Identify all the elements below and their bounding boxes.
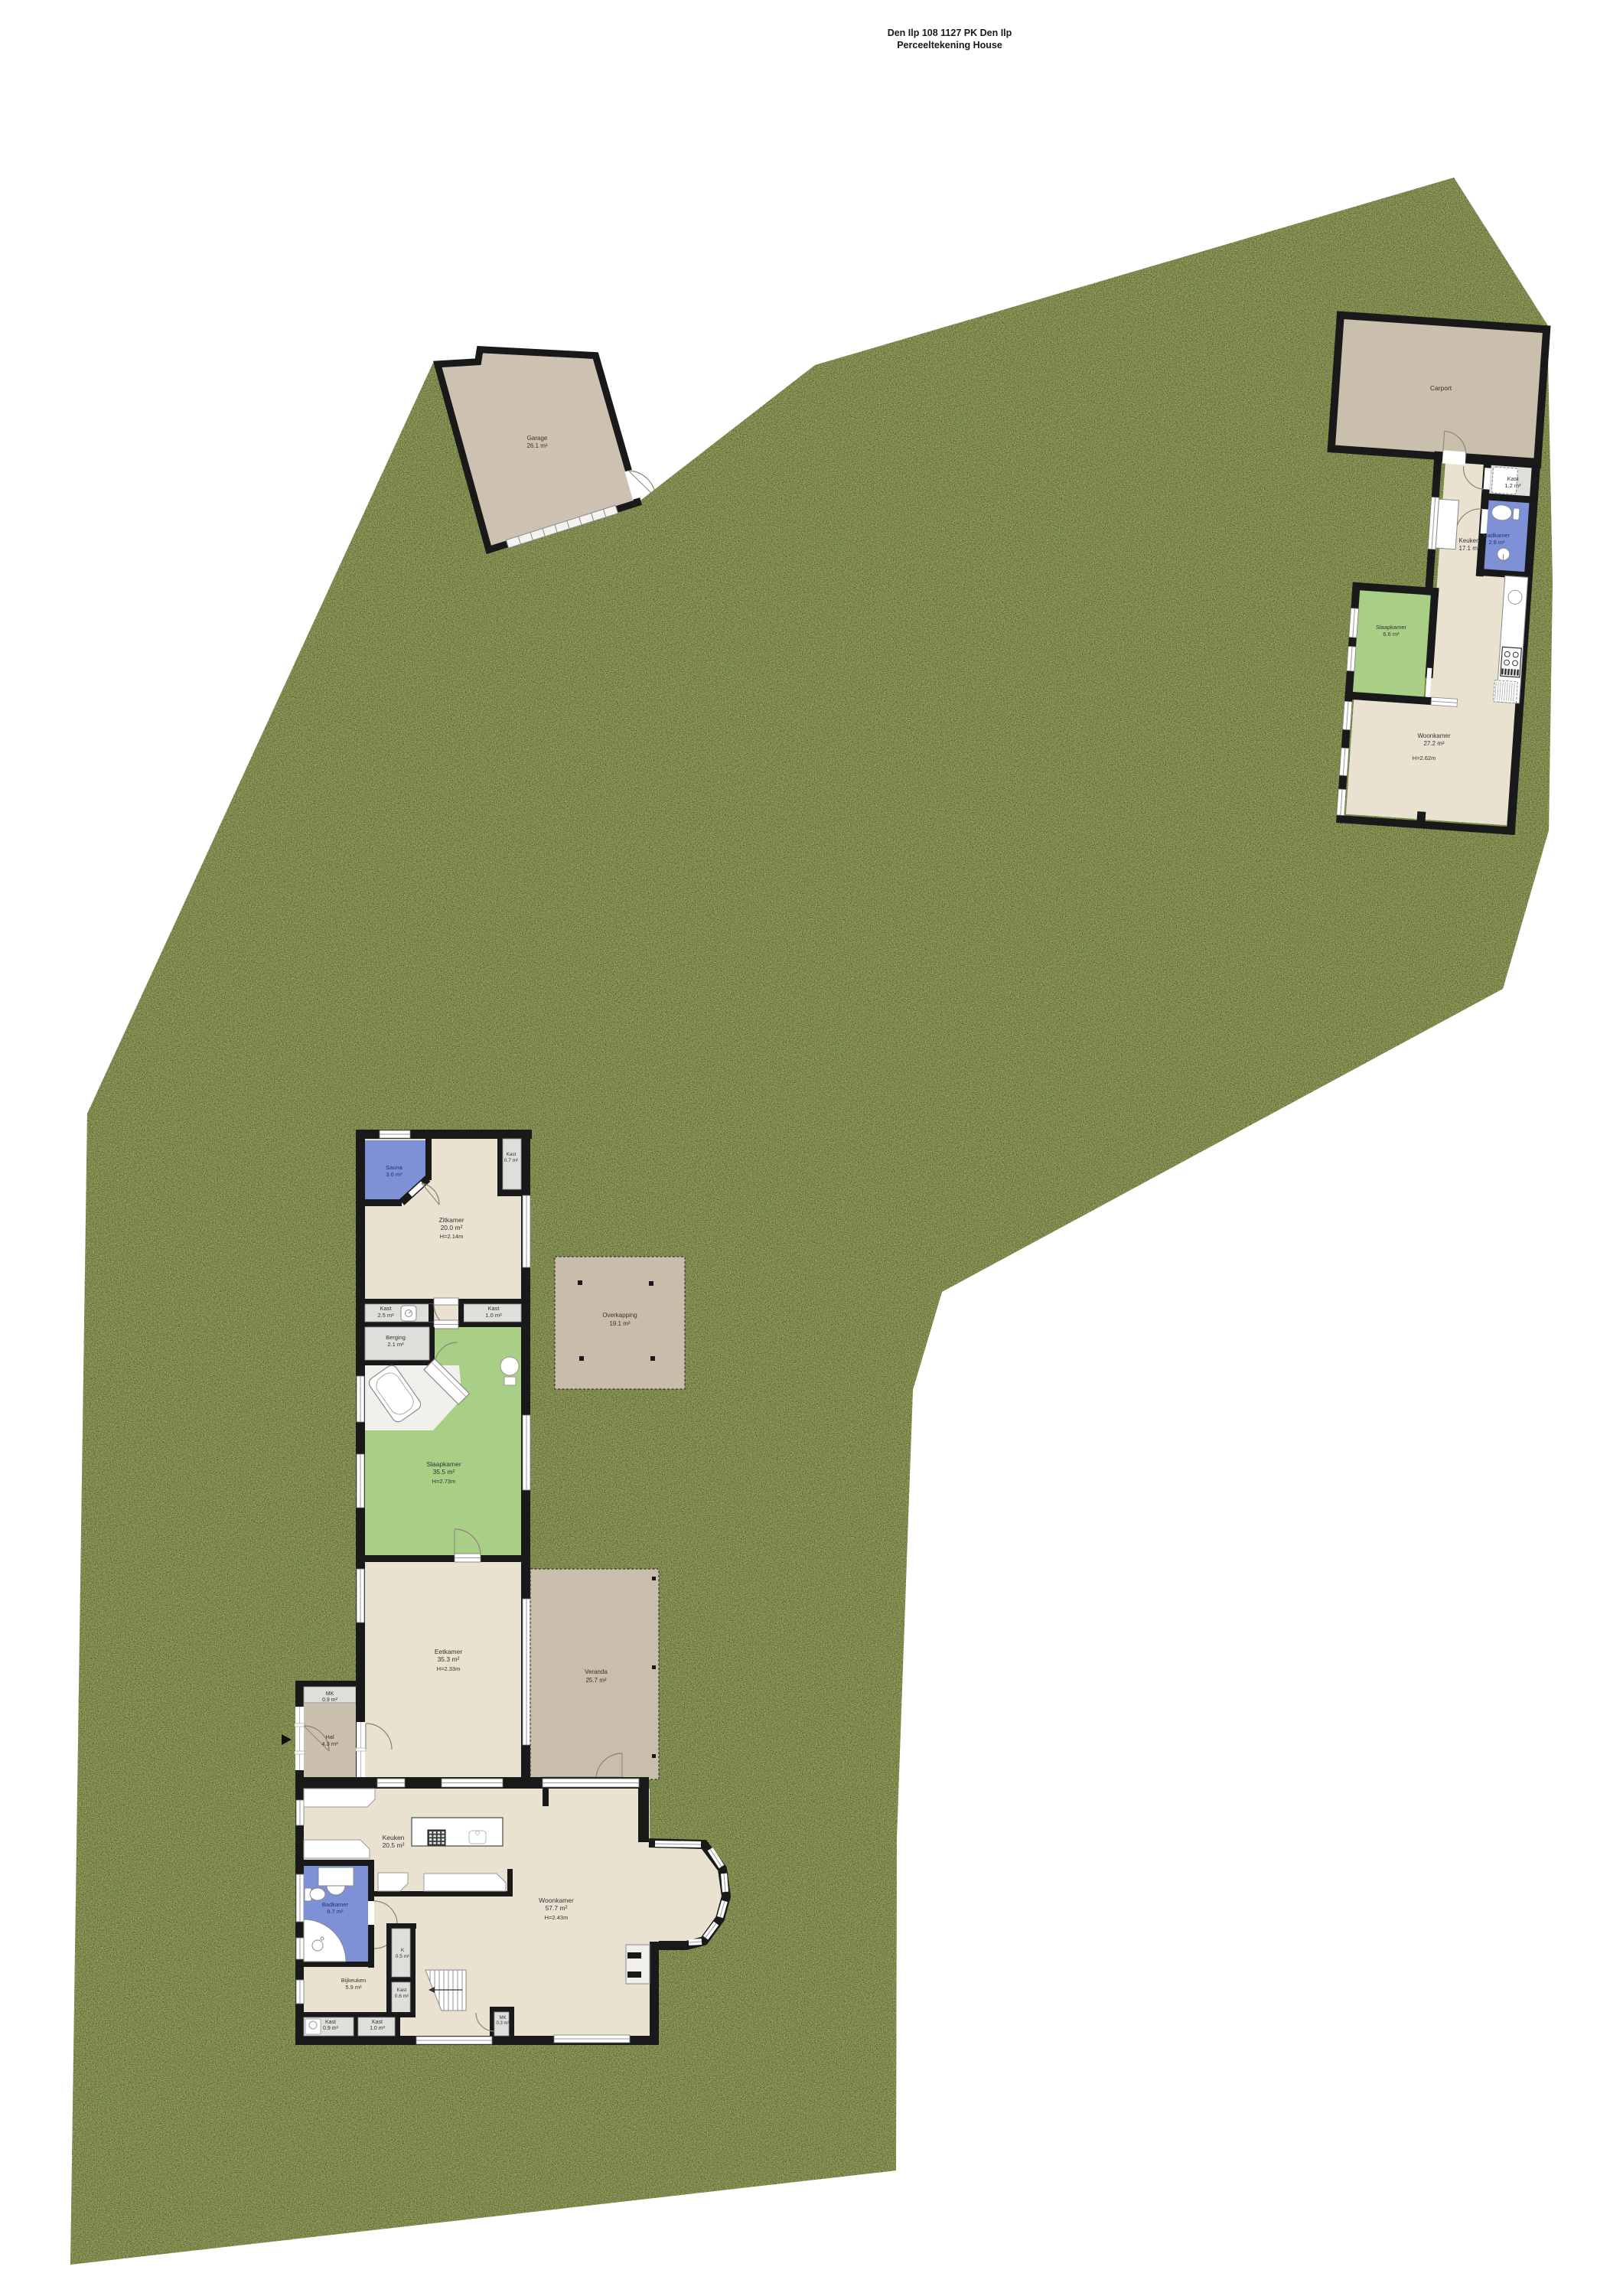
- svg-text:1.2 m²: 1.2 m²: [1504, 482, 1521, 489]
- svg-text:H=2.43m: H=2.43m: [545, 1914, 569, 1921]
- svg-text:35.3 m²: 35.3 m²: [438, 1655, 460, 1663]
- svg-text:H=2.14m: H=2.14m: [440, 1233, 464, 1240]
- svg-text:Keuken: Keuken: [1458, 537, 1479, 544]
- svg-text:5.9 m²: 5.9 m²: [345, 1984, 362, 1991]
- svg-text:26.1 m²: 26.1 m²: [526, 442, 547, 449]
- svg-text:35.5 m²: 35.5 m²: [433, 1468, 455, 1476]
- svg-text:Kast: Kast: [380, 1305, 392, 1312]
- svg-text:4.3 m²: 4.3 m²: [321, 1740, 338, 1747]
- svg-text:1.0 m²: 1.0 m²: [485, 1312, 502, 1319]
- svg-text:MK: MK: [326, 1691, 334, 1697]
- svg-text:Badkamer: Badkamer: [1484, 532, 1511, 539]
- svg-text:Carport: Carport: [1430, 384, 1452, 392]
- svg-text:2.6 m²: 2.6 m²: [1488, 539, 1505, 546]
- svg-text:Hal: Hal: [325, 1733, 334, 1740]
- svg-text:Kast: Kast: [1507, 475, 1519, 482]
- svg-text:K: K: [401, 1948, 405, 1953]
- svg-text:Veranda: Veranda: [585, 1668, 608, 1675]
- svg-text:6.6 m²: 6.6 m²: [1383, 631, 1400, 638]
- svg-text:Woonkamer: Woonkamer: [539, 1896, 574, 1904]
- svg-text:2.1 m²: 2.1 m²: [387, 1341, 404, 1348]
- svg-text:1.0 m²: 1.0 m²: [370, 2026, 386, 2031]
- svg-text:27.2 m²: 27.2 m²: [1423, 740, 1444, 747]
- svg-text:Den Ilp 108 1127 PK Den Ilp: Den Ilp 108 1127 PK Den Ilp: [888, 28, 1012, 38]
- svg-text:0.6 m²: 0.6 m²: [395, 1994, 409, 1999]
- svg-text:Perceeltekening House: Perceeltekening House: [897, 40, 1002, 51]
- svg-text:0.9 m²: 0.9 m²: [322, 1698, 338, 1703]
- svg-text:Overkapping: Overkapping: [602, 1312, 637, 1319]
- svg-text:Kast: Kast: [396, 1988, 406, 1993]
- svg-text:20.0 m²: 20.0 m²: [441, 1224, 463, 1231]
- svg-text:Sauna: Sauna: [386, 1164, 403, 1171]
- svg-text:MK: MK: [500, 2016, 507, 2020]
- svg-text:19.1 m²: 19.1 m²: [609, 1320, 630, 1327]
- svg-text:Zitkamer: Zitkamer: [438, 1216, 464, 1224]
- svg-text:H=2.73m: H=2.73m: [432, 1478, 456, 1485]
- svg-text:0.7 m²: 0.7 m²: [504, 1158, 519, 1163]
- svg-text:Eetkamer: Eetkamer: [435, 1648, 463, 1655]
- svg-text:0.3 m²: 0.3 m²: [496, 2021, 509, 2026]
- svg-text:8.7 m²: 8.7 m²: [327, 1908, 344, 1915]
- svg-text:25.7 m²: 25.7 m²: [585, 1677, 606, 1684]
- svg-text:Kast: Kast: [372, 2020, 383, 2025]
- svg-text:0.9 m²: 0.9 m²: [323, 2026, 339, 2031]
- svg-text:Woonkamer: Woonkamer: [1418, 732, 1451, 739]
- svg-text:57.7 m²: 57.7 m²: [546, 1904, 568, 1912]
- svg-text:H=2.33m: H=2.33m: [437, 1665, 461, 1672]
- svg-text:Kast: Kast: [487, 1305, 500, 1312]
- svg-text:Kast: Kast: [506, 1152, 516, 1157]
- svg-text:Keuken: Keuken: [383, 1834, 405, 1841]
- svg-text:Slaapkamer: Slaapkamer: [1376, 624, 1407, 631]
- svg-text:Slaapkamer: Slaapkamer: [426, 1460, 461, 1468]
- svg-text:17.1 m²: 17.1 m²: [1458, 545, 1479, 552]
- svg-text:Garage: Garage: [527, 435, 548, 442]
- svg-text:0.5 m²: 0.5 m²: [396, 1954, 410, 1959]
- svg-text:Badkamer: Badkamer: [322, 1901, 349, 1908]
- svg-text:H=2.62m: H=2.62m: [1413, 755, 1436, 762]
- svg-text:Bijkeuken: Bijkeuken: [341, 1977, 367, 1984]
- svg-text:Berging: Berging: [386, 1334, 406, 1341]
- svg-text:Kast: Kast: [325, 2020, 336, 2025]
- svg-text:20.5 m²: 20.5 m²: [383, 1841, 405, 1849]
- svg-text:2.5 m²: 2.5 m²: [377, 1312, 394, 1319]
- svg-text:3.6 m²: 3.6 m²: [386, 1171, 402, 1178]
